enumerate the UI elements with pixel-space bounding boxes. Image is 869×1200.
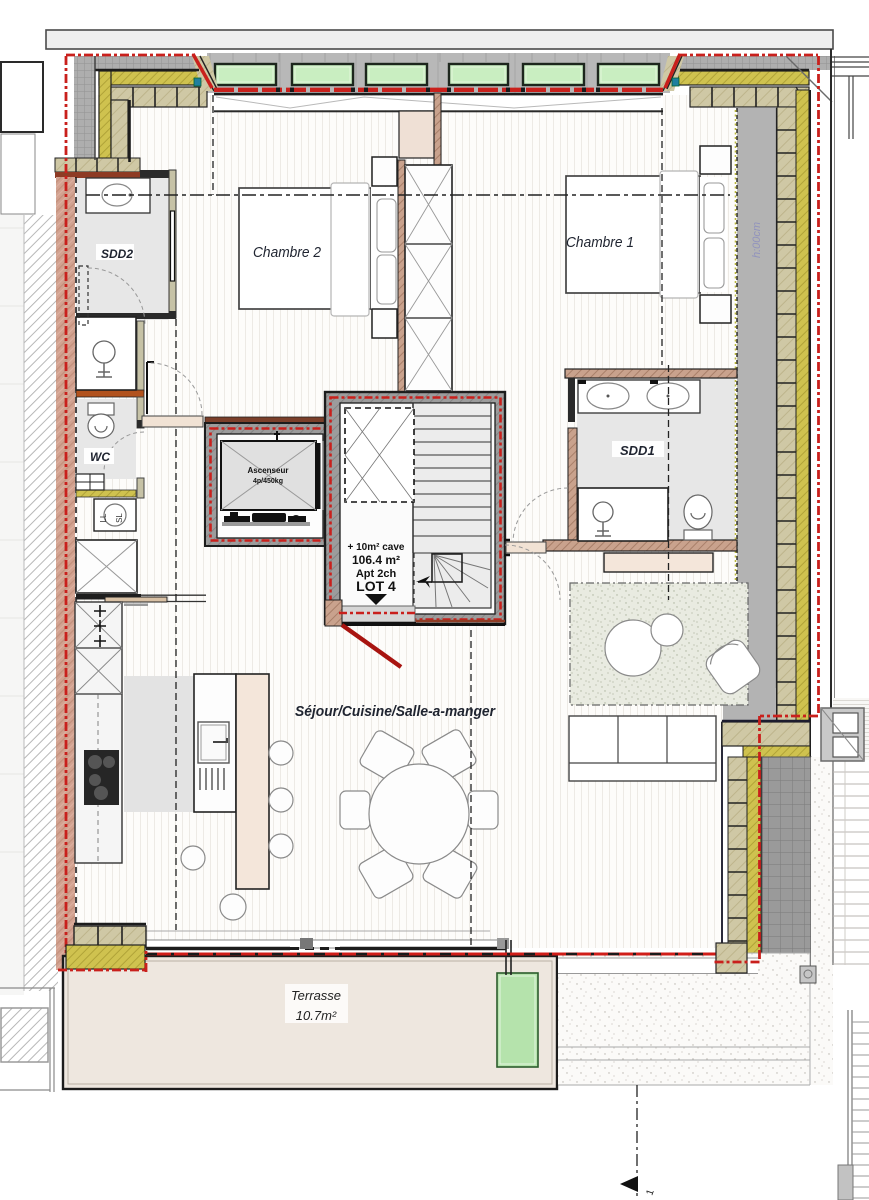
svg-text:SDD1: SDD1 [620,443,655,458]
svg-text:Ascenseur: Ascenseur [248,466,289,475]
svg-text:LOT 4: LOT 4 [356,578,396,594]
svg-text:Séjour/Cuisine/Salle-a-manger: Séjour/Cuisine/Salle-a-manger [295,704,496,720]
svg-text:SDD2: SDD2 [101,247,133,261]
svg-text:LL: LL [99,513,108,522]
svg-text:WC: WC [90,450,110,464]
svg-text:+ 10m² cave: + 10m² cave [348,542,405,553]
svg-text:Chambre 1: Chambre 1 [566,234,634,251]
svg-text:Chambre 2: Chambre 2 [253,244,322,261]
svg-text:4p/450kg: 4p/450kg [253,478,283,485]
svg-text:Terrasse: Terrasse [291,988,341,1003]
svg-text:106.4 m²: 106.4 m² [352,553,400,567]
svg-text:10.7m²: 10.7m² [296,1008,337,1023]
svg-text:h:00cm: h:00cm [751,222,763,258]
svg-text:SL: SL [115,513,124,523]
